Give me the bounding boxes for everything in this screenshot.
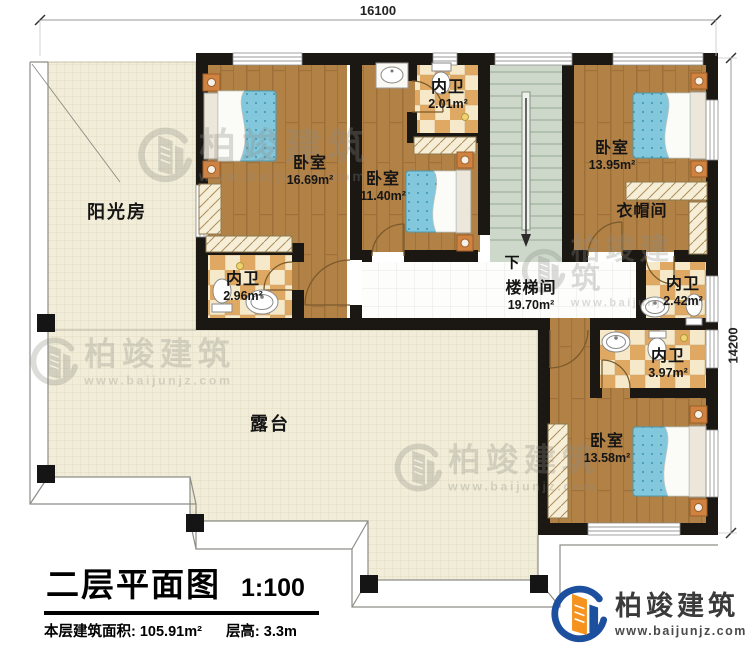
floor-height-text: 层高: 3.3m — [226, 620, 297, 641]
wardrobe-icon — [414, 137, 476, 154]
plan-title: 二层平面图 — [46, 558, 221, 606]
dimension-top: 16100 — [348, 3, 408, 18]
floor-plan-sheet: 柏竣建筑 www.baijunjz.com 柏竣建筑 www.baijunjz.… — [0, 0, 750, 655]
closet-icon — [199, 184, 221, 234]
floor-plan-drawing — [0, 0, 750, 655]
room-label-sunroom: 阳光房 — [87, 202, 147, 222]
room-label-bedroom-n: 卧室11.40m² — [360, 171, 406, 203]
stair-direction-label: 下 — [504, 252, 519, 273]
brand-logo-icon — [546, 584, 608, 646]
brand-name: 柏竣建筑 — [615, 592, 747, 620]
title-row: 二层平面图 1:100 — [44, 558, 319, 615]
room-label-bath-n: 内卫2.01m² — [428, 79, 468, 111]
wardrobe-icon — [626, 182, 707, 200]
title-block: 二层平面图 1:100 本层建筑面积: 105.91m² 层高: 3.3m — [44, 558, 319, 641]
room-label-bath-e: 内卫2.42m² — [663, 276, 703, 308]
floor-area-text: 本层建筑面积: 105.91m² — [44, 620, 202, 641]
plan-scale: 1:100 — [241, 574, 305, 603]
room-label-stairwell: 楼梯间19.70m² — [505, 280, 556, 312]
brand-logo: 柏竣建筑 www.baijunjz.com — [546, 584, 747, 646]
dimension-right: 14200 — [726, 316, 741, 376]
room-label-bedroom-nw: 卧室16.69m² — [287, 155, 334, 187]
brand-url: www.baijunjz.com — [615, 624, 747, 638]
room-label-bath-w: 内卫2.96m² — [223, 271, 263, 303]
wardrobe-icon — [689, 202, 707, 254]
wardrobe-icon — [206, 236, 292, 252]
wardrobe-icon — [548, 424, 568, 518]
room-label-cloakroom: 衣帽间 — [616, 203, 667, 221]
room-label-terrace: 露台 — [250, 414, 290, 434]
vanity-sink-icon — [376, 63, 408, 88]
plan-subtitle: 本层建筑面积: 105.91m² 层高: 3.3m — [44, 620, 319, 641]
room-label-bedroom-ne: 卧室13.95m² — [589, 140, 636, 172]
room-label-bedroom-se: 卧室13.58m² — [584, 433, 631, 465]
room-label-bath-se: 内卫3.97m² — [648, 348, 688, 380]
